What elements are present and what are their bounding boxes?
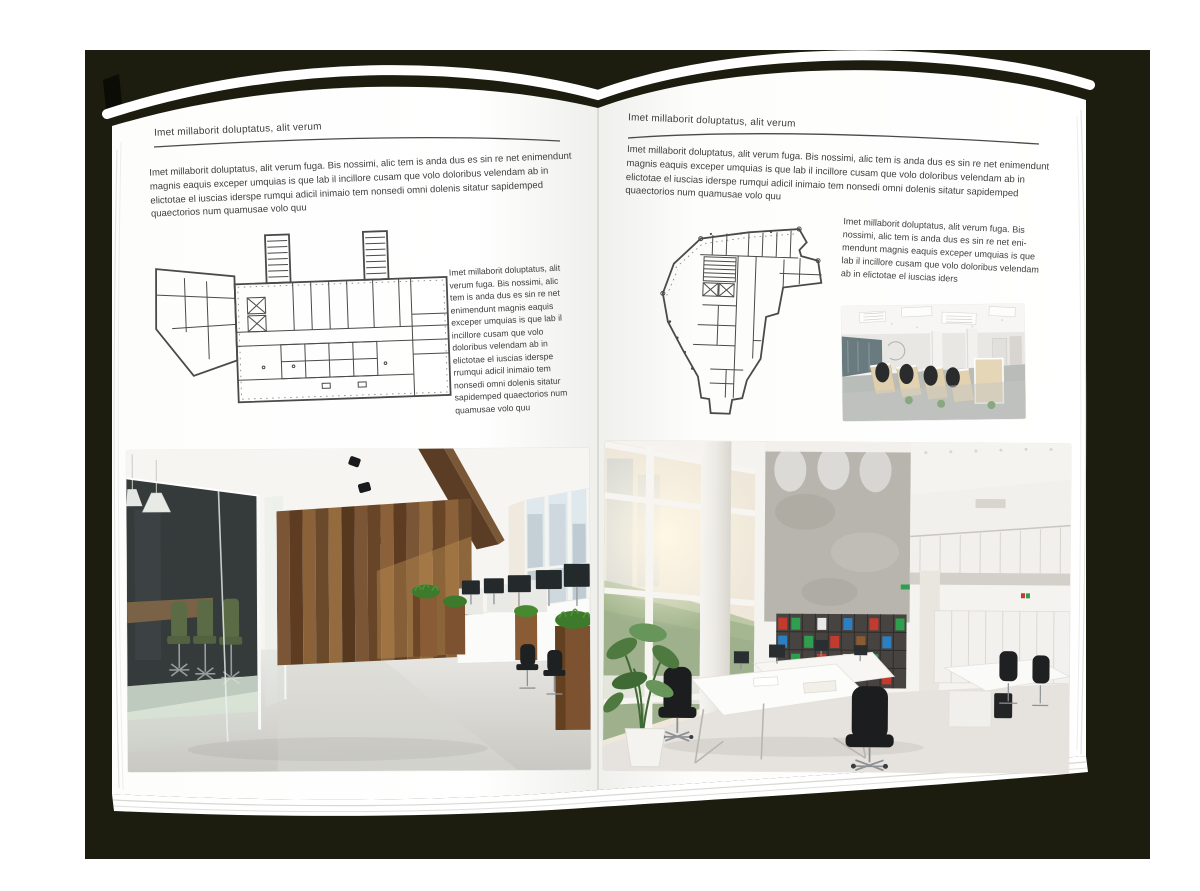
left-office-photo	[126, 448, 591, 772]
right-page-sidebar-text: Imet millaborit doluptatus, alit verum f…	[841, 215, 1044, 289]
exit-sign	[901, 584, 910, 589]
right-floorplan	[645, 217, 834, 420]
plant-pot	[625, 729, 665, 767]
mockup-stage: Imet millaborit doluptatus, alit verum I…	[0, 0, 1200, 891]
wood-plank-wall	[276, 496, 472, 667]
air-vent	[975, 499, 1005, 508]
safety-sign	[1021, 593, 1025, 598]
concrete-wall	[764, 441, 911, 622]
glass-wall	[126, 478, 259, 753]
right-office-photo	[603, 440, 1071, 773]
left-header-rule	[152, 134, 564, 150]
left-page-sidebar-text: Imet millaborit doluptatus, alit verum f…	[449, 261, 571, 417]
left-floorplan	[149, 221, 458, 423]
cover-corner	[103, 74, 122, 110]
waste-bin	[994, 693, 1012, 718]
right-small-office-photo	[841, 304, 1026, 422]
